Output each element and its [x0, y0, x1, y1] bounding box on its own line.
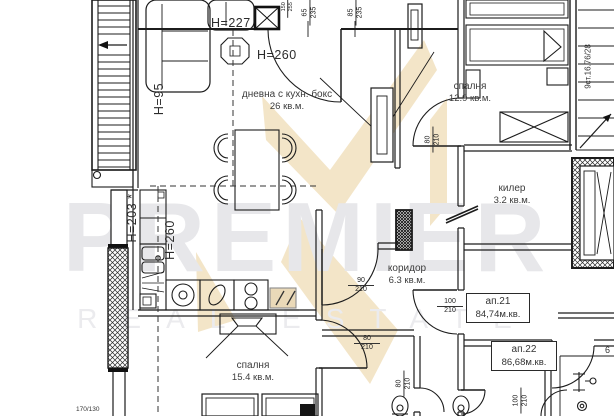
- apartment-21-box: ап.21 84,74м.кв.: [466, 293, 530, 323]
- dim-door-80-210-bedroom2: 80210: [354, 335, 380, 352]
- room-area: 15.4 кв.м.: [203, 372, 303, 384]
- bedroom2-wall: [138, 310, 316, 316]
- pillow: [544, 31, 561, 61]
- bathroom-fixtures: [392, 372, 596, 416]
- wall-pier: [300, 404, 315, 416]
- towel-rail: [573, 372, 590, 392]
- spine-wall: [458, 0, 464, 416]
- cooktop: [200, 280, 234, 310]
- chair: [282, 134, 296, 162]
- dim-door-100-210-apt21: 100210: [437, 298, 463, 315]
- pier-column: [378, 210, 412, 250]
- toilet: [453, 396, 469, 416]
- nightstand: [547, 68, 568, 85]
- room-label-corridor: коридор 6.3 кв.м.: [362, 262, 452, 287]
- bath-door-arc: [552, 346, 594, 388]
- dim-window-170-130: 170/130: [76, 406, 100, 413]
- apartment-area: 84,74м.кв.: [470, 309, 526, 322]
- height-label-h260: H=260: [257, 48, 297, 62]
- room-name: килер: [470, 182, 554, 195]
- room-name: спалня: [420, 80, 520, 93]
- bed-bottom: [202, 394, 318, 416]
- arrow-head-icon: [98, 41, 108, 49]
- room-label-bedroom2: спалня 15.4 кв.м.: [203, 359, 303, 384]
- kiler-door-leaf: [446, 206, 478, 223]
- height-label-h260b: H=260: [163, 210, 177, 270]
- dim-window-65-235: 65235: [301, 0, 318, 26]
- coffee-table: [221, 38, 249, 64]
- height-label-h203: H=203 *: [125, 186, 139, 250]
- room-name: дневна с кухн. бокс: [212, 88, 362, 101]
- chair: [214, 176, 228, 204]
- bedroom1-furniture: [466, 0, 568, 142]
- room-name: спалня: [203, 359, 303, 372]
- shaft-marker: [270, 288, 296, 308]
- room-area: 26 кв.м.: [212, 101, 362, 113]
- hall-wall: [395, 30, 400, 168]
- dim-window-85-235: 85235: [347, 0, 364, 26]
- room-name: коридор: [362, 262, 452, 275]
- apt22-door-arc: [461, 390, 485, 414]
- drain: [578, 402, 587, 411]
- dim-door-100-210-apt22: 100210: [512, 388, 529, 414]
- apartment-22-box: ап.22 86,68м.кв.: [491, 341, 557, 371]
- room-label-kiler: килер 3.2 кв.м.: [470, 182, 554, 207]
- dim-door-80-210-bedroom1: 80210: [424, 127, 441, 153]
- apartment-area: 86,68м.кв.: [495, 357, 553, 370]
- corridor-walls: [316, 210, 457, 416]
- hatched-wall: [108, 248, 128, 368]
- dim-150-255: 150255: [281, 0, 295, 18]
- room-label-bedroom1: спалня 12.9 кв.м.: [420, 80, 520, 105]
- apartment-number: ап.22: [495, 343, 553, 357]
- dim-door-80-210-wc: 80210: [395, 371, 412, 397]
- dim-door-90-210-corridor: 90210: [348, 277, 374, 294]
- stairs-note: 9ст.16.76/28: [584, 17, 593, 117]
- room-area: 3.2 кв.м.: [470, 195, 554, 207]
- chair: [282, 176, 296, 204]
- sink: [142, 262, 164, 273]
- left-staircase: [92, 0, 136, 187]
- tv-unit: [206, 314, 288, 358]
- floorplan-page: PREMIER REAL ESTATE: [0, 0, 614, 416]
- door-leaf: [408, 4, 422, 48]
- height-label-h227: H=227: [211, 16, 251, 30]
- room-label-living: дневна с кухн. бокс 26 кв.м.: [212, 88, 362, 113]
- partial-room-label: 6: [605, 345, 610, 355]
- elevator-shaft: [572, 158, 614, 268]
- vent-shaft-box: [255, 7, 279, 29]
- dining-table: [235, 130, 279, 210]
- toilet: [392, 396, 408, 416]
- room-area: 12.9 кв.м.: [420, 93, 520, 105]
- wc-door-arc: [420, 388, 444, 412]
- room-area: 6.3 кв.м.: [362, 275, 452, 287]
- height-label-h95: H=95: [152, 69, 166, 129]
- dining-set: [214, 130, 296, 210]
- chair: [214, 134, 228, 162]
- apartment-number: ап.21: [470, 295, 526, 309]
